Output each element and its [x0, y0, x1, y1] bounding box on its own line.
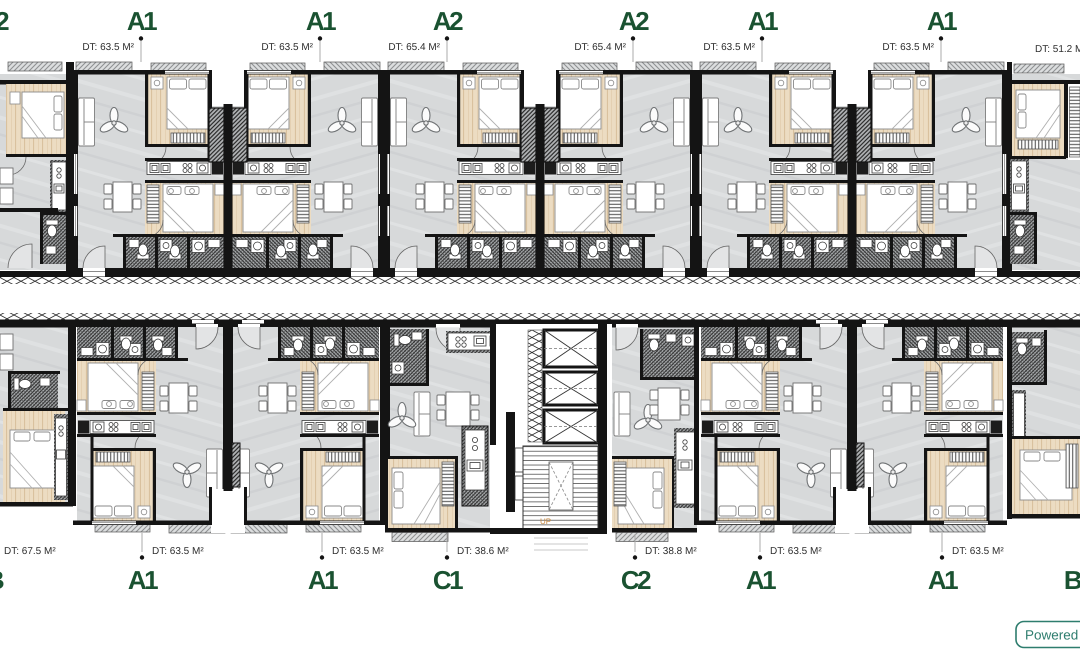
- svg-text:C2: C2: [621, 565, 651, 595]
- svg-text:DT: 63.5 M²: DT: 63.5 M²: [770, 546, 822, 557]
- svg-text:A1: A1: [748, 6, 778, 36]
- svg-text:DT: 63.5 M²: DT: 63.5 M²: [952, 546, 1004, 557]
- svg-text:DT: 67.5 M²: DT: 67.5 M²: [4, 546, 56, 557]
- svg-text:DT: 65.4 M²: DT: 65.4 M²: [574, 42, 626, 53]
- svg-text:C1: C1: [433, 565, 463, 595]
- svg-text:A1: A1: [128, 565, 158, 595]
- svg-text:DT: 38.8 M²: DT: 38.8 M²: [645, 546, 697, 557]
- svg-text:DT: 63.5 M²: DT: 63.5 M²: [332, 546, 384, 557]
- svg-text:DT: 63.5 M²: DT: 63.5 M²: [882, 42, 934, 53]
- svg-text:DT: 65.4 M²: DT: 65.4 M²: [388, 42, 440, 53]
- svg-text:A1: A1: [308, 565, 338, 595]
- svg-text:A1: A1: [928, 565, 958, 595]
- svg-text:A1: A1: [927, 6, 957, 36]
- svg-text:UP: UP: [540, 517, 551, 526]
- svg-text:A1: A1: [746, 565, 776, 595]
- svg-text:A1: A1: [306, 6, 336, 36]
- svg-text:DT: 38.6 M²: DT: 38.6 M²: [457, 546, 509, 557]
- svg-text:DT: 63.5 M²: DT: 63.5 M²: [82, 42, 134, 53]
- svg-text:DT: 63.5 M²: DT: 63.5 M²: [152, 546, 204, 557]
- svg-text:A1: A1: [127, 6, 157, 36]
- svg-text:DT: 63.5 M²: DT: 63.5 M²: [261, 42, 313, 53]
- svg-text:DT: 63.5 M²: DT: 63.5 M²: [703, 42, 755, 53]
- svg-text:B: B: [1064, 565, 1080, 595]
- svg-text:A2: A2: [433, 6, 463, 36]
- svg-text:A2: A2: [619, 6, 649, 36]
- svg-text:DT: 51.2 M²: DT: 51.2 M²: [1035, 44, 1080, 55]
- svg-text:Powered by: Powered by: [1025, 628, 1080, 643]
